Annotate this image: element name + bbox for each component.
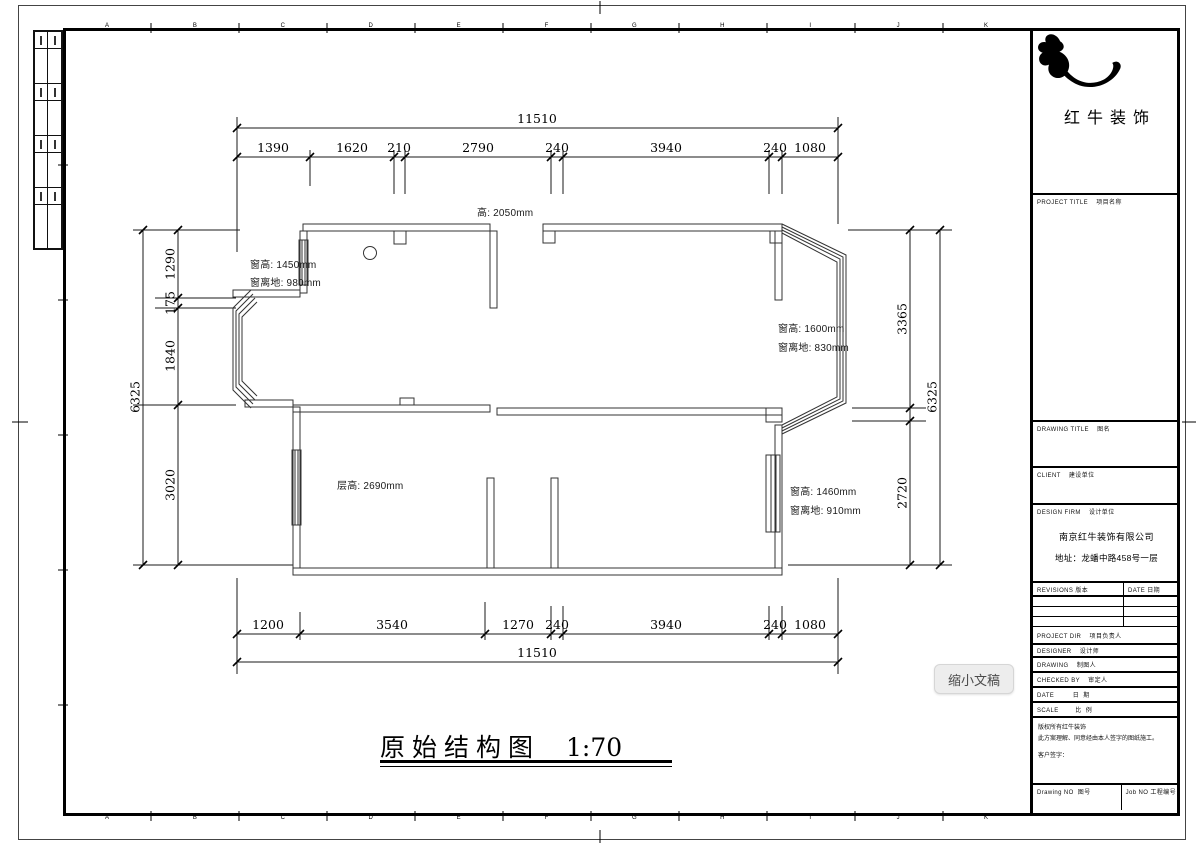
- drawing-no-label: Drawing NO 图号: [1033, 785, 1121, 810]
- dim-label: 2790: [462, 140, 494, 155]
- drawing-label: DRAWING 制图人: [1033, 658, 1100, 671]
- client-label: CLIENT 建设单位: [1033, 468, 1180, 481]
- title-underline: [380, 760, 672, 763]
- dim-label: 210: [387, 140, 411, 155]
- revisions-header: REVISIONS 版本 DATE 日期: [1033, 583, 1180, 597]
- dim-label: 6325: [128, 381, 143, 413]
- company-logo-icon: [1033, 28, 1129, 106]
- dim-label: 3940: [650, 140, 682, 155]
- dim-label: 240: [763, 140, 787, 155]
- drawing-sheet: ABCDEFGHIJK ABCDEFGHIJK: [0, 0, 1200, 844]
- date-row: DATE 日 期: [1033, 688, 1180, 703]
- drawing-title-cell: DRAWING TITLE 图名: [1033, 422, 1180, 468]
- revision-row: [1033, 617, 1180, 627]
- checked-by-label: CHECKED BY 审定人: [1033, 673, 1111, 686]
- company-address: 地址：龙蟠中路458号一层: [1033, 552, 1180, 564]
- window-annotation: 窗高: 1450mm: [250, 256, 316, 271]
- dim-label: 11510: [517, 645, 557, 660]
- date-label: DATE 日 期: [1033, 688, 1094, 701]
- date-col-label: DATE 日期: [1123, 583, 1180, 595]
- title-block: 红牛装饰 PROJECT TITLE 项目名称 DRAWING TITLE 图名…: [1030, 28, 1180, 816]
- revision-row: [1033, 607, 1180, 617]
- window-annotation: 窗离地: 980mm: [250, 274, 321, 289]
- column-symbol: [364, 247, 377, 260]
- project-title-cell: PROJECT TITLE 项目名称: [1033, 195, 1180, 422]
- floor-plan-linework: [0, 0, 1200, 844]
- notice-cell: 版权所有红牛装饰 此方案理解、同意经由本人签字的图纸施工。 客户签字：: [1033, 718, 1180, 785]
- dim-label: 1080: [794, 140, 826, 155]
- dim-label: 3540: [376, 617, 408, 632]
- company-name: 南京红牛装饰有限公司: [1033, 530, 1180, 543]
- title-underline-thin: [380, 766, 672, 767]
- dim-label: 175: [163, 291, 178, 315]
- logo-cell: 红牛装饰: [1033, 28, 1180, 195]
- company-logo-text: 红牛装饰: [1057, 104, 1156, 128]
- project-dir-label: PROJECT DIR 项目负责人: [1033, 629, 1126, 642]
- walls: [233, 224, 846, 575]
- client-cell: CLIENT 建设单位: [1033, 468, 1180, 505]
- dim-label: 240: [763, 617, 787, 632]
- dim-label: 3940: [650, 617, 682, 632]
- drawing-title-text: 原始结构图: [380, 728, 540, 764]
- shrink-document-chip[interactable]: 缩小文稿: [934, 664, 1014, 694]
- client-sign-label: 客户签字：: [1038, 751, 1175, 762]
- drawing-scale-text: 1:70: [566, 733, 622, 762]
- window-annotation: 窗离地: 830mm: [778, 339, 849, 354]
- job-no-label: Job NO 工程编号: [1121, 785, 1180, 810]
- floor-height-annotation: 层高: 2690mm: [337, 477, 403, 492]
- drawing-row: DRAWING 制图人: [1033, 658, 1180, 673]
- notice-line: 版权所有红牛装饰: [1038, 723, 1175, 734]
- designer-row: DESIGNER 设计师: [1033, 645, 1180, 658]
- designer-label: DESIGNER 设计师: [1033, 645, 1103, 657]
- notice-line: 此方案理解、同意经由本人签字的图纸施工。: [1038, 734, 1175, 745]
- checked-by-row: CHECKED BY 审定人: [1033, 673, 1180, 688]
- window-annotation: 窗离地: 910mm: [790, 502, 861, 517]
- dim-label: 1200: [252, 617, 284, 632]
- dim-label: 2720: [895, 477, 910, 509]
- project-dir-row: PROJECT DIR 项目负责人: [1033, 627, 1180, 645]
- sheet-title: 原始结构图 1:70: [380, 728, 672, 764]
- dim-label: 6325: [925, 381, 940, 413]
- dim-label: 3020: [163, 469, 178, 501]
- dim-label: 1620: [336, 140, 368, 155]
- dim-label: 11510: [517, 111, 557, 126]
- project-title-label: PROJECT TITLE 项目名称: [1033, 195, 1180, 208]
- design-firm-label: DESIGN FIRM 设计单位: [1033, 505, 1180, 518]
- dim-label: 240: [545, 140, 569, 155]
- revisions-label: REVISIONS 版本: [1033, 583, 1123, 595]
- window-annotation: 窗高: 1460mm: [790, 483, 856, 498]
- drawing-title-label: DRAWING TITLE 图名: [1033, 422, 1180, 435]
- dim-label: 1270: [502, 617, 534, 632]
- scale-label: SCALE 比 例: [1033, 703, 1096, 716]
- dim-label: 240: [545, 617, 569, 632]
- dim-label: 1080: [794, 617, 826, 632]
- revision-row: [1033, 597, 1180, 607]
- design-firm-cell: DESIGN FIRM 设计单位 南京红牛装饰有限公司 地址：龙蟠中路458号一…: [1033, 505, 1180, 583]
- dim-label: 1290: [163, 248, 178, 280]
- dim-label: 1840: [163, 340, 178, 372]
- dim-label: 1390: [257, 140, 289, 155]
- drawing-no-row: Drawing NO 图号 Job NO 工程编号: [1033, 785, 1180, 810]
- dim-label: 3365: [895, 303, 910, 335]
- scale-row: SCALE 比 例: [1033, 703, 1180, 718]
- door-height-annotation: 高: 2050mm: [477, 204, 533, 219]
- window-annotation: 窗高: 1600mm: [778, 320, 844, 335]
